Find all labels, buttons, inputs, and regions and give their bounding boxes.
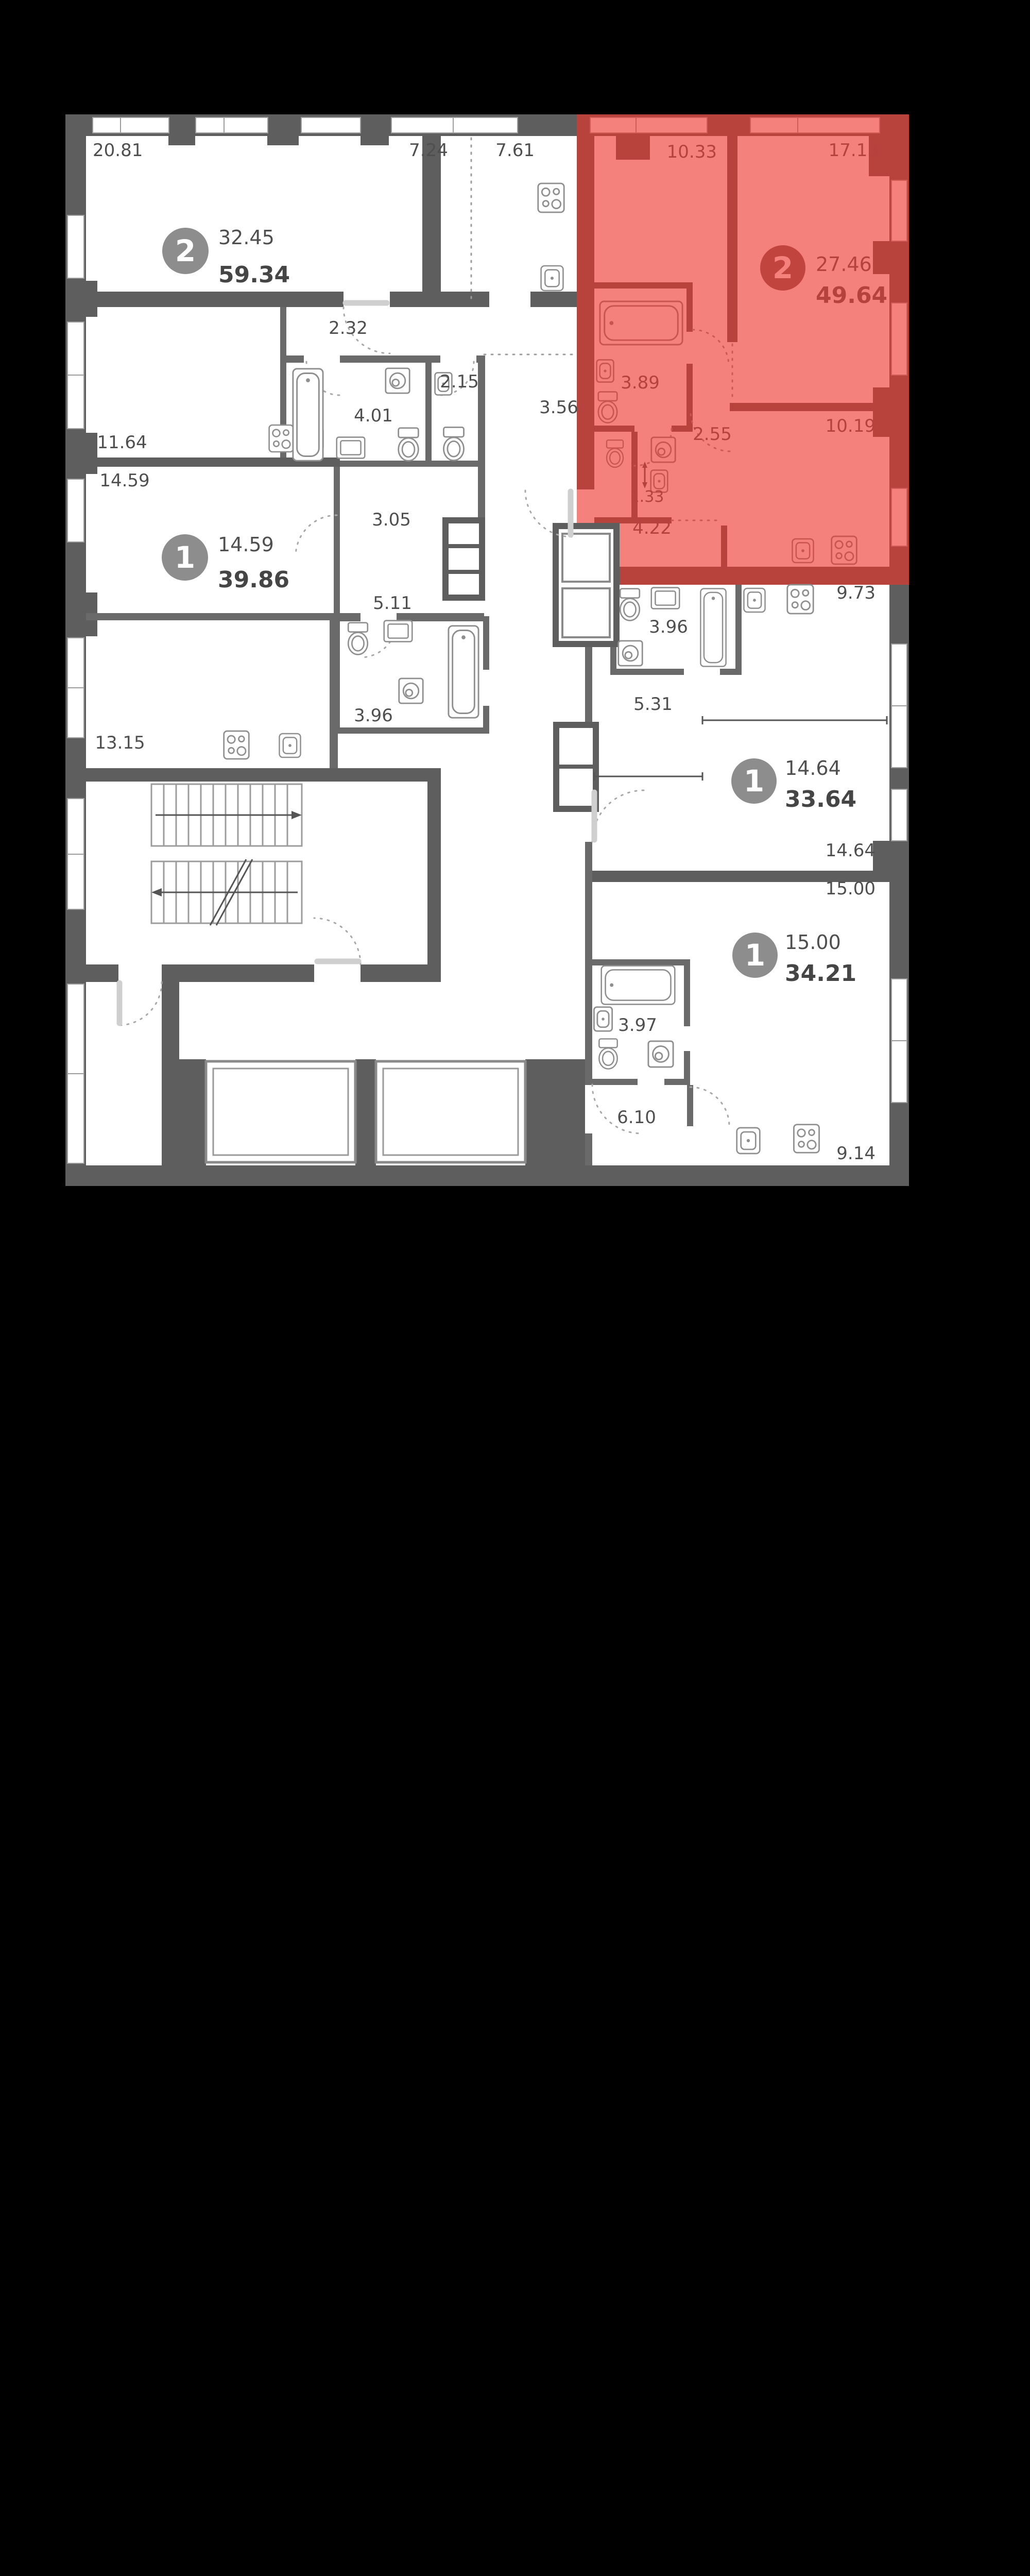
washing-machine-icon <box>399 679 423 703</box>
dim-kitchen-914: 9.14 <box>836 1143 875 1164</box>
dim-hall-305: 3.05 <box>372 510 411 530</box>
living-area: 32.45 <box>218 226 274 249</box>
sink-icon <box>384 621 413 642</box>
dim-wc-215: 2.15 <box>440 371 479 392</box>
stove-icon <box>832 536 857 564</box>
dim-red-hall-255: 2.55 <box>693 424 732 445</box>
bathtub-icon <box>602 966 675 1005</box>
dim-hall-610: 6.10 <box>617 1107 656 1128</box>
bathtub-icon <box>700 588 726 666</box>
toilet-icon <box>620 589 640 621</box>
toilet-icon <box>348 623 368 655</box>
sink-icon <box>597 360 614 382</box>
total-area: 39.86 <box>218 567 289 593</box>
stove-icon <box>787 585 813 614</box>
dim-red-bath-389: 3.89 <box>621 372 660 393</box>
living-area: 27.46 <box>816 253 872 276</box>
dim-hall-232: 2.32 <box>329 318 368 338</box>
stove-icon <box>224 731 249 759</box>
dim-hall-531: 5.31 <box>633 694 673 715</box>
living-area: 15.00 <box>785 931 841 954</box>
sink-icon <box>744 588 765 612</box>
toilet-icon <box>607 440 623 467</box>
dim-red-room-1713: 17.13 <box>829 140 879 161</box>
sink-icon <box>792 539 813 563</box>
toilet-icon <box>599 1039 617 1069</box>
sink-icon <box>594 1007 612 1031</box>
dim-left-1459: 14.59 <box>99 470 149 491</box>
dim-top-left: 20.81 <box>93 140 143 161</box>
total-area: 34.21 <box>785 960 856 987</box>
dim-bath-396-left: 3.96 <box>354 705 393 726</box>
washing-machine-icon <box>651 437 675 462</box>
living-area: 14.59 <box>218 533 274 556</box>
toilet-icon <box>443 427 463 460</box>
sink-icon <box>337 437 365 459</box>
dim-hall-511: 5.11 <box>373 593 412 614</box>
dim-red-wc-133: 1.33 <box>630 488 664 506</box>
stove-icon <box>794 1125 819 1153</box>
dim-kitchen-761: 7.61 <box>495 140 535 161</box>
total-area: 33.64 <box>785 786 856 812</box>
dim-bath-401: 4.01 <box>354 405 393 426</box>
dim-bath-397: 3.97 <box>618 1015 657 1036</box>
washing-machine-icon <box>386 368 409 393</box>
dim-left-1164: 11.64 <box>97 432 147 453</box>
dim-hall-356: 3.56 <box>539 397 578 418</box>
room-count: 1 <box>744 764 764 799</box>
sink-icon <box>541 266 563 291</box>
toilet-icon <box>598 392 617 423</box>
room-count: 2 <box>772 250 793 285</box>
selected-apartment-overlay[interactable] <box>577 114 909 585</box>
dim-bath-396-right: 3.96 <box>649 617 688 637</box>
dim-red-room-1033: 10.33 <box>667 142 717 162</box>
floor-plan: 20.81 7.24 7.61 10.33 17.13 11.64 14.59 … <box>0 0 1030 2576</box>
dim-kitchen-724: 7.24 <box>409 140 448 161</box>
room-count: 1 <box>175 540 195 575</box>
bathtub-icon <box>449 626 478 718</box>
dim-kitchen-973: 9.73 <box>836 583 875 603</box>
total-area: 49.64 <box>816 282 887 309</box>
sink-icon <box>651 588 680 609</box>
stove-icon <box>538 183 564 212</box>
screenshot-canvas: 20.81 7.24 7.61 10.33 17.13 11.64 14.59 … <box>0 0 1030 2576</box>
bathtub-icon <box>600 301 682 345</box>
washing-machine-icon <box>648 1041 673 1067</box>
room-count: 1 <box>745 938 765 973</box>
dim-left-1315: 13.15 <box>95 733 145 753</box>
dim-right-1500: 15.00 <box>826 878 875 899</box>
sink-icon <box>737 1128 760 1154</box>
washing-machine-icon <box>619 641 642 666</box>
living-area: 14.64 <box>785 757 841 779</box>
bathtub-icon <box>293 369 323 461</box>
sink-icon <box>279 734 300 757</box>
total-area: 59.34 <box>218 262 290 288</box>
room-count: 2 <box>175 233 196 268</box>
stove-icon <box>269 425 294 452</box>
dim-red-bed-1019: 10.19 <box>826 416 875 436</box>
toilet-icon <box>399 428 419 461</box>
dim-right-1464: 14.64 <box>826 840 875 861</box>
dim-red-entry-422: 4.22 <box>632 518 672 538</box>
